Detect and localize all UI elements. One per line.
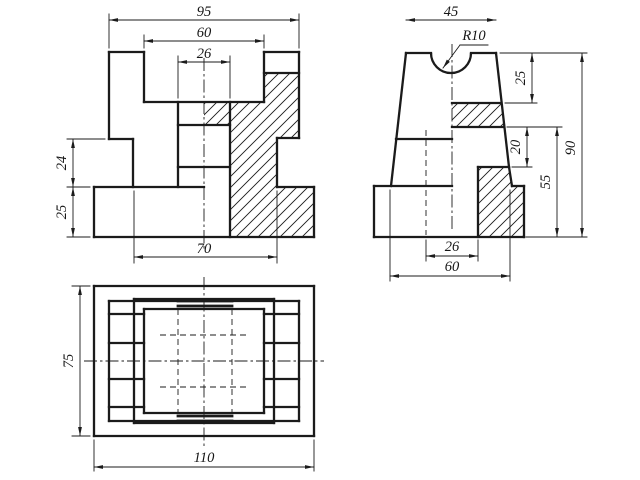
dimension-arrow (255, 39, 264, 43)
dim-label-75: 75 (61, 354, 77, 369)
dim-label-55: 55 (538, 175, 554, 190)
dimension-arrow (580, 228, 584, 237)
dim-label-60: 60 (197, 25, 212, 41)
section-hatch-region (452, 103, 504, 127)
dim-label-25: 25 (54, 205, 70, 220)
groove-arc (431, 53, 471, 73)
dimension-arrow (78, 427, 82, 436)
dimension-arrow (71, 139, 75, 148)
dimension-arrow (134, 255, 143, 259)
dim-label-20: 20 (508, 139, 524, 154)
dimension-arrow (406, 18, 415, 22)
dim-label-45: 45 (444, 4, 459, 20)
front-view-section-hatch (204, 73, 314, 237)
dimension-arrow (78, 286, 82, 295)
dimension-arrow (109, 18, 118, 22)
dimension-arrow (580, 53, 584, 62)
dimension-arrow (178, 60, 187, 64)
dimension-arrow (390, 274, 399, 278)
dimension-arrow (71, 178, 75, 187)
dim-label-25: 25 (513, 71, 529, 86)
dim-label-70: 70 (197, 241, 212, 257)
dimension-arrow (443, 60, 450, 68)
dimension-arrow (144, 39, 153, 43)
dim-label-60: 60 (445, 259, 460, 275)
dimension-arrow (487, 18, 496, 22)
drawing-svg: 95602624257045252055902660R1075110 (0, 0, 640, 480)
dimension-arrow (525, 158, 529, 167)
section-hatch-region (478, 167, 524, 237)
dim-label-26: 26 (445, 239, 460, 255)
leader-label-R10: R10 (461, 28, 486, 44)
dim-label-24: 24 (54, 156, 70, 171)
dim-label-95: 95 (197, 4, 212, 20)
dimension-arrow (268, 255, 277, 259)
section-hatch-region (204, 73, 314, 237)
dimension-arrow (426, 254, 435, 258)
dimension-arrow (530, 53, 534, 62)
engineering-drawing-canvas: 95602624257045252055902660R1075110 (0, 0, 640, 480)
dim-label-110: 110 (194, 450, 215, 466)
dimension-arrow (221, 60, 230, 64)
dimension-arrow (501, 274, 510, 278)
dimension-arrow (469, 254, 478, 258)
dimension-arrow (290, 18, 299, 22)
dimension-arrow (555, 127, 559, 136)
dimension-arrow (305, 465, 314, 469)
dimension-arrow (71, 228, 75, 237)
dimension-arrow (555, 228, 559, 237)
dimension-arrow (530, 94, 534, 103)
dimension-arrow (71, 187, 75, 196)
dim-label-90: 90 (563, 140, 579, 155)
dimension-arrow (94, 465, 103, 469)
dimension-arrow (525, 127, 529, 136)
side-view-section-hatch (452, 103, 524, 237)
dim-label-26: 26 (197, 46, 212, 62)
